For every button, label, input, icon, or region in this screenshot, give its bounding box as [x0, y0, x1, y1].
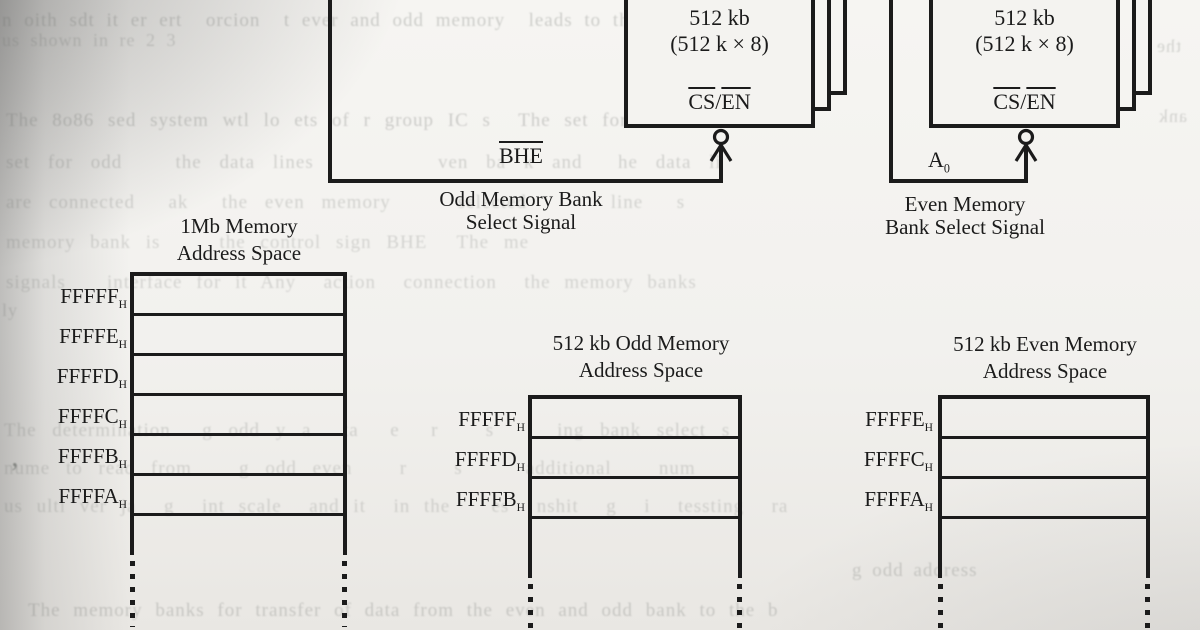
- table-title-line2: Address Space: [875, 358, 1200, 385]
- hex-subscript: H: [119, 339, 127, 351]
- bhe-signal-label: BHE: [446, 143, 596, 169]
- odd512-title: 512 kb Odd MemoryAddress Space: [471, 330, 811, 384]
- even512-box: [938, 395, 1150, 578]
- address-label: FFFFBH: [0, 442, 127, 470]
- address-label: FFFFAH: [773, 485, 933, 513]
- address-label: FFFFDH: [0, 362, 127, 390]
- dotted-continuation: [528, 584, 533, 630]
- hex-subscript: H: [119, 459, 127, 471]
- hex-subscript: H: [925, 422, 933, 434]
- memory-cell-row: [134, 396, 343, 436]
- dotted-continuation: [130, 561, 135, 627]
- hex-subscript: H: [119, 499, 127, 511]
- dotted-continuation: [737, 584, 742, 630]
- mem1mb-box: [130, 272, 347, 555]
- memory-cell-row: [532, 479, 738, 519]
- memory-cell-row: [134, 476, 343, 516]
- hex-subscript: H: [925, 462, 933, 474]
- mem1mb-title: 1Mb MemoryAddress Space: [69, 213, 409, 267]
- address-label: FFFFEH: [0, 322, 127, 350]
- a0-signal-label: A0: [928, 147, 950, 173]
- address-label: FFFFAH: [0, 482, 127, 510]
- hex-subscript: H: [119, 379, 127, 391]
- odd512-box: [528, 395, 742, 578]
- scanned-figure-page: n oith sdt it er ert orcion t ever and o…: [0, 0, 1200, 630]
- dotted-continuation: [1145, 584, 1150, 630]
- address-label: FFFFFH: [0, 282, 127, 310]
- address-label: FFFFDH: [365, 445, 525, 473]
- memory-map-tables: 1Mb MemoryAddress SpaceFFFFFHFFFFEHFFFFD…: [0, 0, 1200, 630]
- odd-bank-caption: Odd Memory Bank Select Signal: [390, 188, 652, 234]
- address-label: FFFFBH: [365, 485, 525, 513]
- address-label: FFFFFH: [365, 405, 525, 433]
- memory-cell-row: [942, 399, 1146, 439]
- hex-subscript: H: [517, 502, 525, 514]
- memory-cell-row: [532, 399, 738, 439]
- memory-cell-row: [942, 439, 1146, 479]
- even512-title: 512 kb Even MemoryAddress Space: [875, 331, 1200, 385]
- table-title-line2: Address Space: [471, 357, 811, 384]
- address-label: FFFFCH: [773, 445, 933, 473]
- memory-cell-row: [532, 439, 738, 479]
- table-title-line2: Address Space: [69, 240, 409, 267]
- memory-cell-row: [134, 316, 343, 356]
- hex-subscript: H: [119, 299, 127, 311]
- memory-cell-row: [134, 276, 343, 316]
- memory-cell-row: [942, 479, 1146, 519]
- even-bank-caption: Even Memory Bank Select Signal: [834, 193, 1096, 239]
- hex-subscript: H: [925, 502, 933, 514]
- address-label: FFFFCH: [0, 402, 127, 430]
- dotted-continuation: [938, 584, 943, 630]
- memory-cell-row: [134, 356, 343, 396]
- memory-cell-row: [134, 436, 343, 476]
- table-title-line1: 512 kb Odd Memory: [471, 330, 811, 357]
- table-title-line1: 512 kb Even Memory: [875, 331, 1200, 358]
- hex-subscript: H: [119, 419, 127, 431]
- dotted-continuation: [342, 561, 347, 627]
- hex-subscript: H: [517, 422, 525, 434]
- table-title-line1: 1Mb Memory: [69, 213, 409, 240]
- hex-subscript: H: [517, 462, 525, 474]
- address-label: FFFFEH: [773, 405, 933, 433]
